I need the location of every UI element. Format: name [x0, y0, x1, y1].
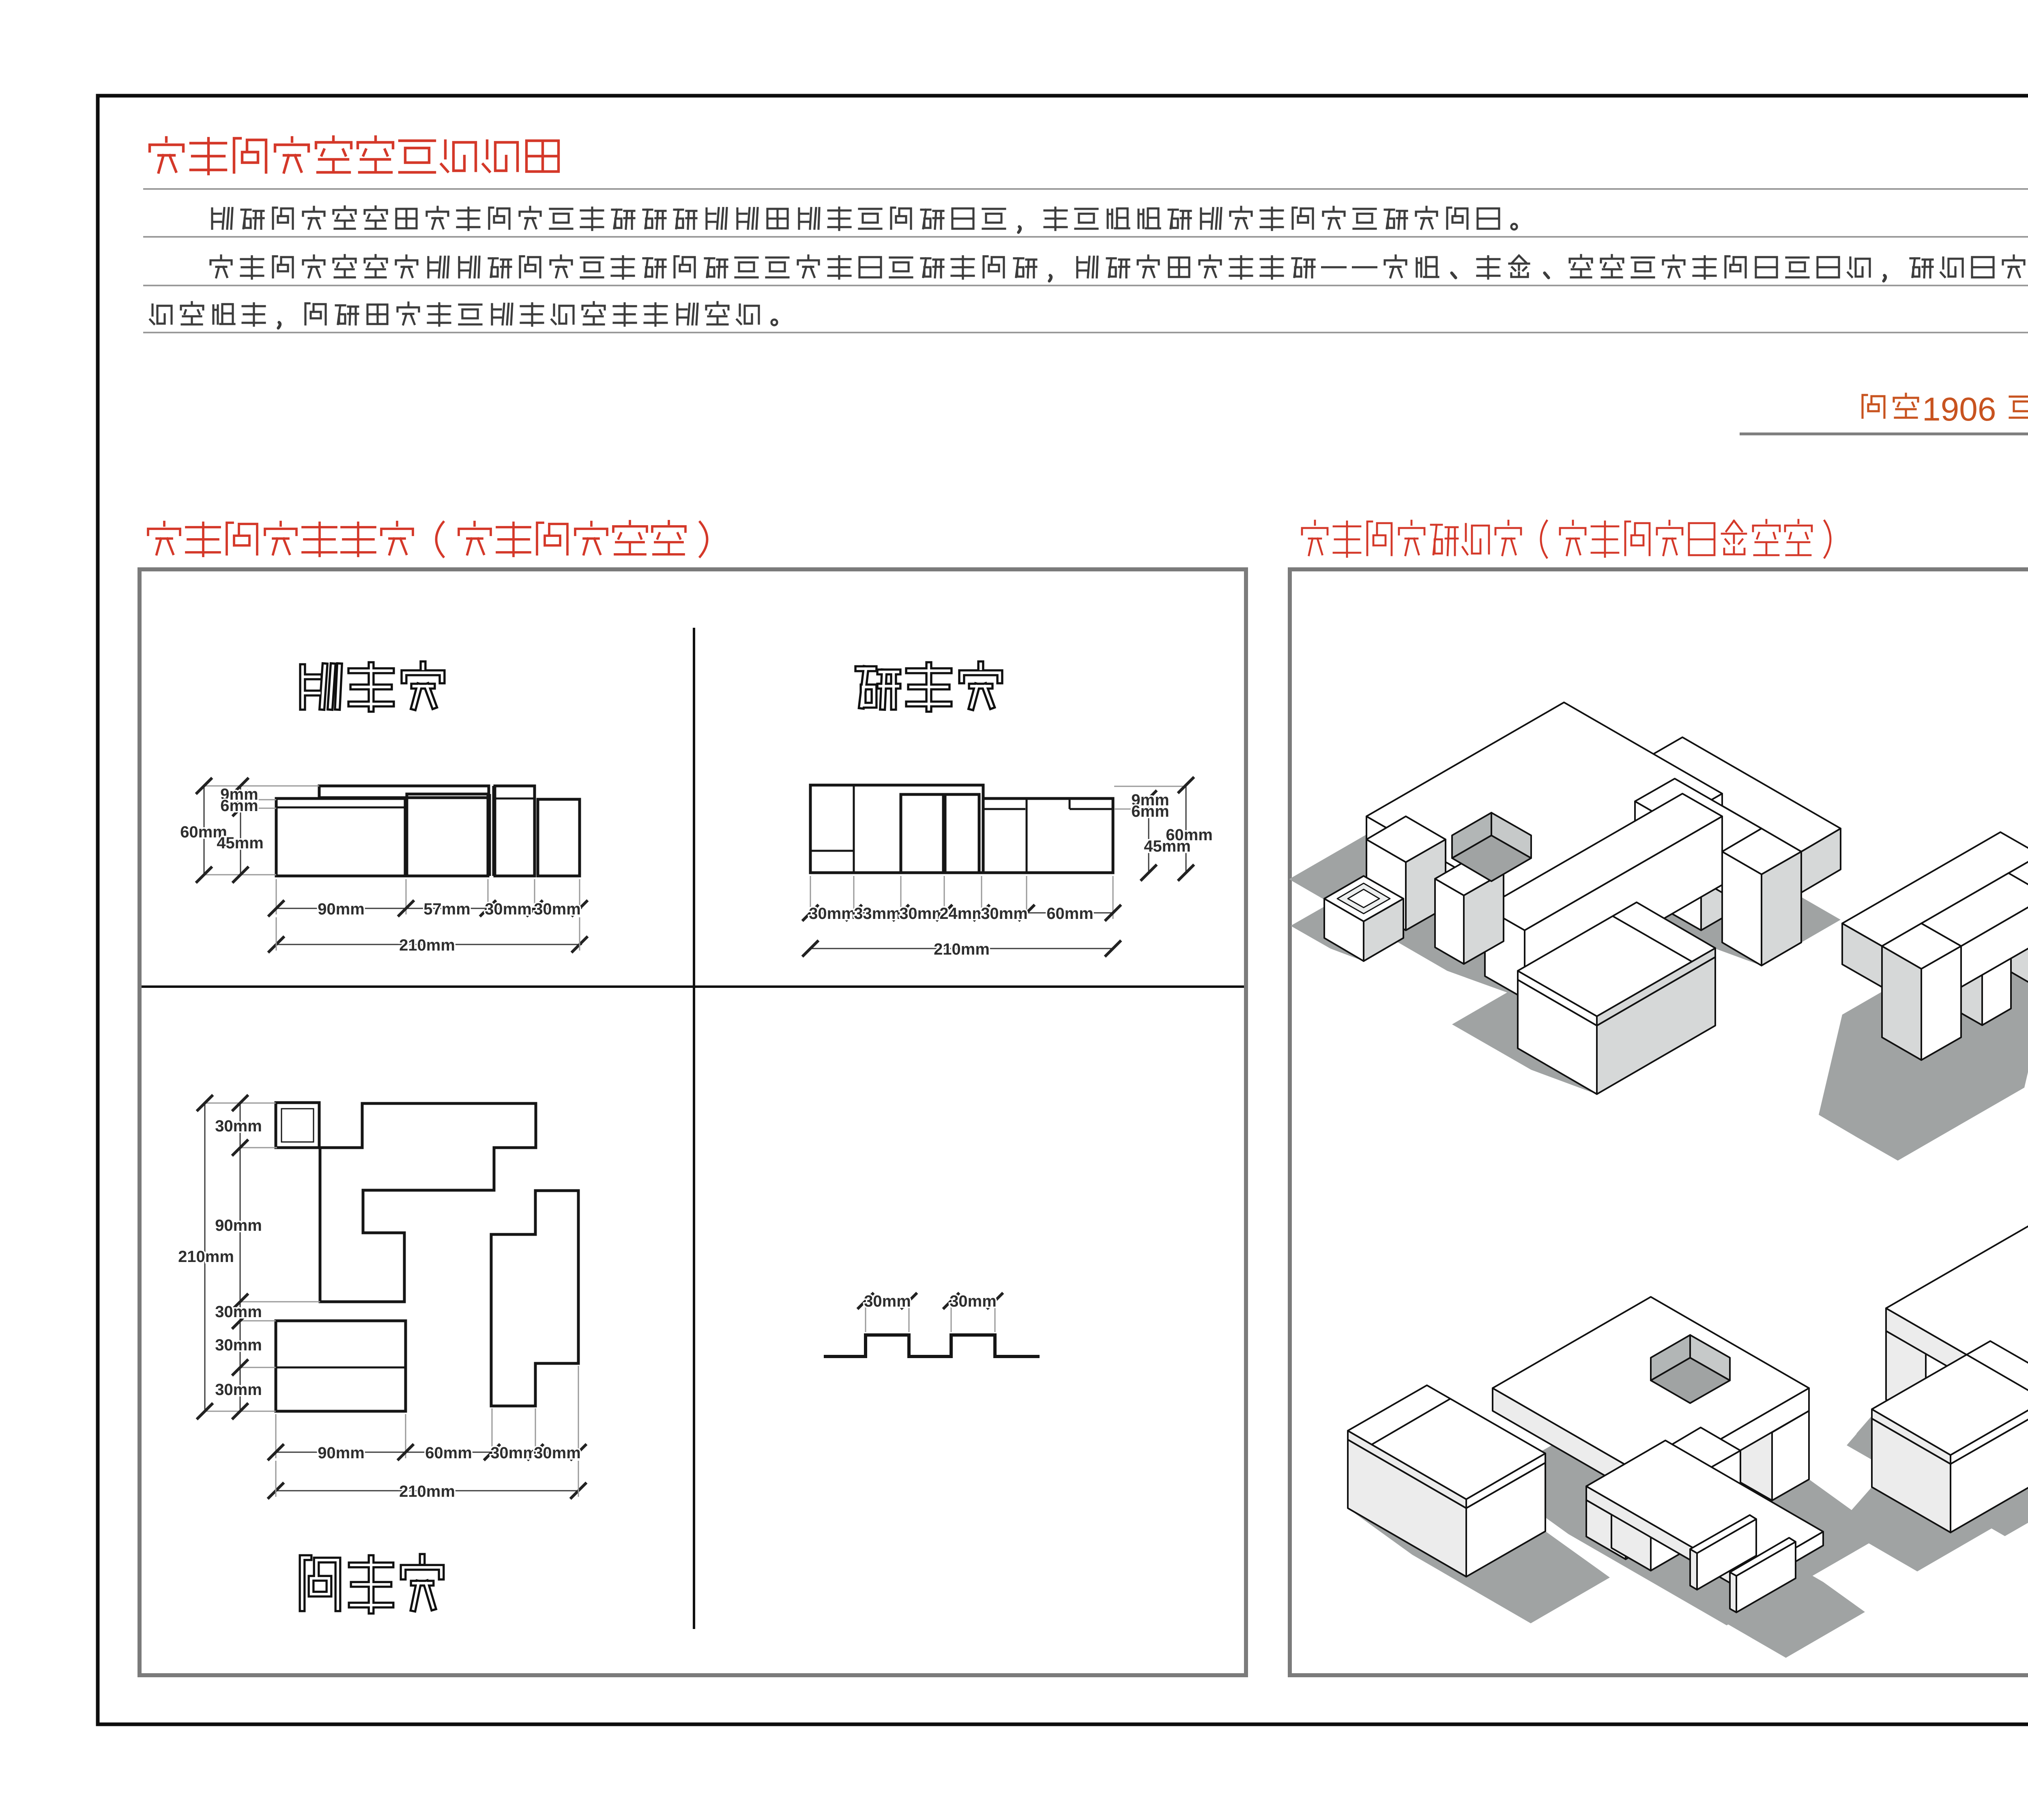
svg-text:210mm: 210mm — [399, 1483, 455, 1500]
svg-text:90mm: 90mm — [318, 900, 365, 918]
svg-text:30mm: 30mm — [485, 900, 532, 918]
svg-text:210mm: 210mm — [178, 1248, 234, 1266]
svg-text:30mm: 30mm — [215, 1336, 262, 1354]
svg-text:24mm: 24mm — [939, 905, 986, 923]
svg-text:6mm: 6mm — [220, 797, 258, 815]
svg-text:30mm: 30mm — [864, 1292, 911, 1310]
svg-text:60mm: 60mm — [425, 1444, 472, 1462]
svg-text:30mm: 30mm — [215, 1303, 262, 1321]
svg-text:45mm: 45mm — [217, 834, 264, 852]
svg-text:30mm: 30mm — [950, 1292, 997, 1310]
svg-text:57mm: 57mm — [423, 900, 470, 918]
svg-text:90mm: 90mm — [215, 1217, 262, 1234]
svg-text:6mm: 6mm — [1131, 803, 1169, 820]
svg-text:60mm: 60mm — [1046, 905, 1093, 923]
svg-text:210mm: 210mm — [934, 940, 990, 958]
svg-text:30mm: 30mm — [534, 900, 581, 918]
svg-text:30mm: 30mm — [215, 1381, 262, 1399]
svg-text:30mm: 30mm — [981, 905, 1028, 923]
svg-text:1906: 1906 — [1922, 391, 1996, 428]
svg-text:30mm: 30mm — [490, 1444, 537, 1462]
svg-text:45mm: 45mm — [1144, 837, 1191, 855]
svg-text:33mm: 33mm — [854, 905, 901, 923]
svg-text:90mm: 90mm — [318, 1444, 365, 1462]
svg-text:30mm: 30mm — [534, 1444, 581, 1462]
svg-text:30mm: 30mm — [215, 1117, 262, 1135]
svg-text:30mm: 30mm — [809, 905, 856, 923]
svg-text:210mm: 210mm — [399, 936, 455, 954]
